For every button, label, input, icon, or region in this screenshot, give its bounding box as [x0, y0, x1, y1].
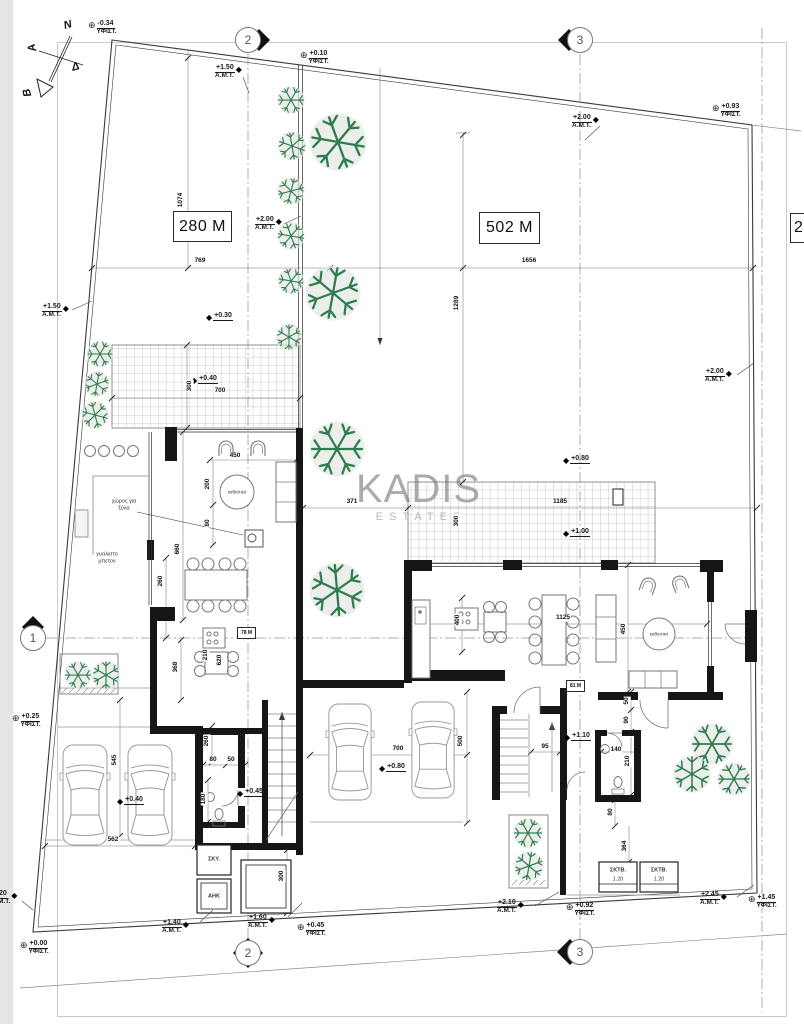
benchmark-icon: ⊕ — [297, 923, 305, 932]
compass-a: A — [27, 42, 40, 53]
dim-label: 210 — [203, 649, 210, 662]
dim-label: 210 — [625, 755, 632, 768]
dim-label: 300 — [279, 870, 286, 883]
grid-bubble-2-top: 2 — [239, 34, 257, 46]
dim-label: 562 — [107, 837, 120, 844]
elev-marker: ◆+0.40 — [117, 796, 144, 806]
room-label-wood: χώρος για ξύλα — [106, 498, 142, 511]
dim-label: 620 — [217, 654, 224, 667]
level-diamond-icon: ◆ — [721, 893, 727, 901]
bin-label-2: ΣΚΤΒ. — [651, 868, 667, 875]
level-diamond-icon: ◆ — [206, 314, 212, 322]
dim-label: 260 — [158, 575, 165, 588]
dim-label: 450 — [621, 623, 628, 636]
dim-label: 700 — [214, 388, 227, 395]
grid-bubble-2-bottom: 2 — [239, 947, 257, 959]
plot-area-clipped: 2 — [790, 213, 804, 243]
benchmark-icon: ⊕ — [712, 104, 720, 113]
level-diamond-icon: ◆ — [236, 66, 242, 74]
benchmark-icon: ⊕ — [566, 903, 574, 912]
compass-d: Δ — [71, 61, 81, 74]
elev-marker: ⊕+0.45ΥΦΙΣΤ. — [297, 922, 326, 938]
bin-size-2: 1.20 — [654, 877, 665, 884]
level-diamond-icon: ◆ — [593, 116, 599, 124]
elev-marker: ◆+0.40 — [191, 375, 218, 385]
dim-label: 90 — [624, 715, 631, 724]
dim-label: 260 — [204, 735, 211, 748]
stair-dim: 95 — [540, 744, 549, 751]
elev-marker-clipped: 20M.T.◆ — [0, 890, 17, 906]
dim-label: 1656 — [521, 258, 537, 265]
benchmark-icon: ⊕ — [88, 21, 96, 30]
elev-marker: +1.60A.M.T.◆ — [248, 914, 275, 930]
level-diamond-icon: ◆ — [183, 921, 189, 929]
dim-label: 400 — [455, 614, 462, 627]
box-label-sky: ΣΚΥ. — [208, 857, 220, 864]
elev-marker: ◆+0.45 — [237, 788, 264, 798]
bin-size-1: 1.20 — [613, 877, 624, 884]
dim-label: 769 — [194, 258, 207, 265]
elev-marker: +2.00A.M.T.◆ — [572, 114, 599, 130]
elev-marker: ◆+1.10 — [564, 732, 591, 742]
dim-label: 700 — [392, 746, 405, 753]
unit-tag-right: 81 M — [566, 680, 585, 692]
elev-marker: +1.50A.M.T.◆ — [42, 303, 69, 319]
level-diamond-icon: ◆ — [276, 218, 282, 226]
elev-marker: +2.10A.M.T.◆ — [497, 899, 524, 915]
elev-marker: ⊕-0.34ΥΦΙΣΤ. — [88, 20, 117, 36]
elev-marker: ◆+1.00 — [563, 528, 590, 538]
elev-marker: +2.00A.M.T.◆ — [255, 216, 282, 232]
dim-label: 1074 — [178, 192, 185, 208]
elev-marker: ◆+0.80 — [379, 763, 406, 773]
dim-label: 180 — [201, 793, 208, 806]
text-overlay: N A Δ B 2 3 1 2 3 280 M 502 M 2 78 M 81 … — [0, 0, 804, 1024]
plot-area-left: 280 M — [173, 211, 232, 242]
level-diamond-icon: ◆ — [379, 765, 385, 773]
elev-marker: +1.50A.M.T.◆ — [215, 64, 242, 80]
level-diamond-icon: ◆ — [726, 370, 732, 378]
plot-area-right: 502 M — [479, 212, 540, 244]
benchmark-icon: ⊕ — [300, 51, 308, 60]
dim-label: 660 — [175, 543, 182, 556]
dim-label: 371 — [346, 499, 359, 506]
dim-label: 300 — [187, 380, 194, 393]
dim-label: 50 — [226, 757, 235, 764]
box-label-ahk: ΑΗΚ — [208, 894, 220, 901]
compass-b: B — [22, 87, 35, 98]
benchmark-icon: ⊕ — [12, 714, 20, 723]
level-diamond-icon: ◆ — [117, 798, 123, 806]
dim-label: 80 — [208, 757, 217, 764]
level-diamond-icon: ◆ — [564, 734, 570, 742]
dim-label: 1185 — [552, 499, 568, 506]
level-diamond-icon: ◆ — [563, 457, 569, 465]
dim-label: 500 — [458, 735, 465, 748]
dim-label: 50 — [624, 696, 631, 705]
dim-label: 368 — [173, 661, 180, 674]
dim-label: 1125 — [555, 615, 571, 622]
room-label-sitting-right: καθιστικό — [644, 631, 674, 636]
elev-marker: +1.40A.M.T.◆ — [162, 919, 189, 935]
elev-marker: ◆+0.30 — [206, 312, 233, 322]
elev-marker: ⊕+1.45ΥΦΙΣΤ. — [748, 894, 777, 910]
elev-marker: ⊕+0.92ΥΦΙΣΤ. — [566, 902, 595, 918]
level-diamond-icon: ◆ — [11, 892, 17, 900]
elev-marker: +2.00A.M.T.◆ — [705, 368, 732, 384]
elev-marker: +2.45A.M.T.◆ — [700, 891, 727, 907]
benchmark-icon: ⊕ — [20, 941, 28, 950]
level-diamond-icon: ◆ — [63, 305, 69, 313]
dim-label: 80 — [205, 518, 212, 527]
level-diamond-icon: ◆ — [518, 901, 524, 909]
dim-label: 1289 — [454, 295, 461, 311]
grid-bubble-1: 1 — [24, 632, 42, 644]
bin-label-1: ΣΚΤΒ. — [610, 868, 626, 875]
dim-label: 300 — [454, 515, 461, 528]
dim-label: 80 — [608, 807, 615, 816]
room-label-sitting-left: καθιστικό — [222, 489, 252, 494]
compass-n: N — [63, 19, 74, 32]
unit-tag-left: 78 M — [237, 627, 256, 639]
dim-label: 200 — [205, 478, 212, 491]
elev-marker: ⊕+0.00ΥΦΙΣΤ. — [20, 940, 49, 956]
level-diamond-icon: ◆ — [237, 790, 243, 798]
elev-marker: ◆+0.80 — [563, 455, 590, 465]
room-label-concrete: γυαλιστο μπετον — [89, 551, 125, 564]
level-diamond-icon: ◆ — [269, 916, 275, 924]
grid-bubble-3-bottom: 3 — [571, 946, 589, 958]
dim-label: 140 — [610, 747, 623, 754]
level-diamond-icon: ◆ — [563, 530, 569, 538]
dim-label: 364 — [622, 840, 629, 853]
benchmark-icon: ⊕ — [748, 895, 756, 904]
floorplan-page: KADIS ESTATES — [0, 0, 804, 1024]
dim-label: 450 — [229, 453, 242, 460]
elev-marker: ⊕+0.10ΥΦΙΣΤ. — [300, 50, 329, 66]
elev-marker: ⊕+0.93ΥΦΙΣΤ. — [712, 103, 741, 119]
grid-bubble-3-top: 3 — [571, 34, 589, 46]
dim-label: 545 — [112, 754, 119, 767]
elev-marker: ⊕+0.25ΥΦΙΣΤ. — [12, 713, 41, 729]
